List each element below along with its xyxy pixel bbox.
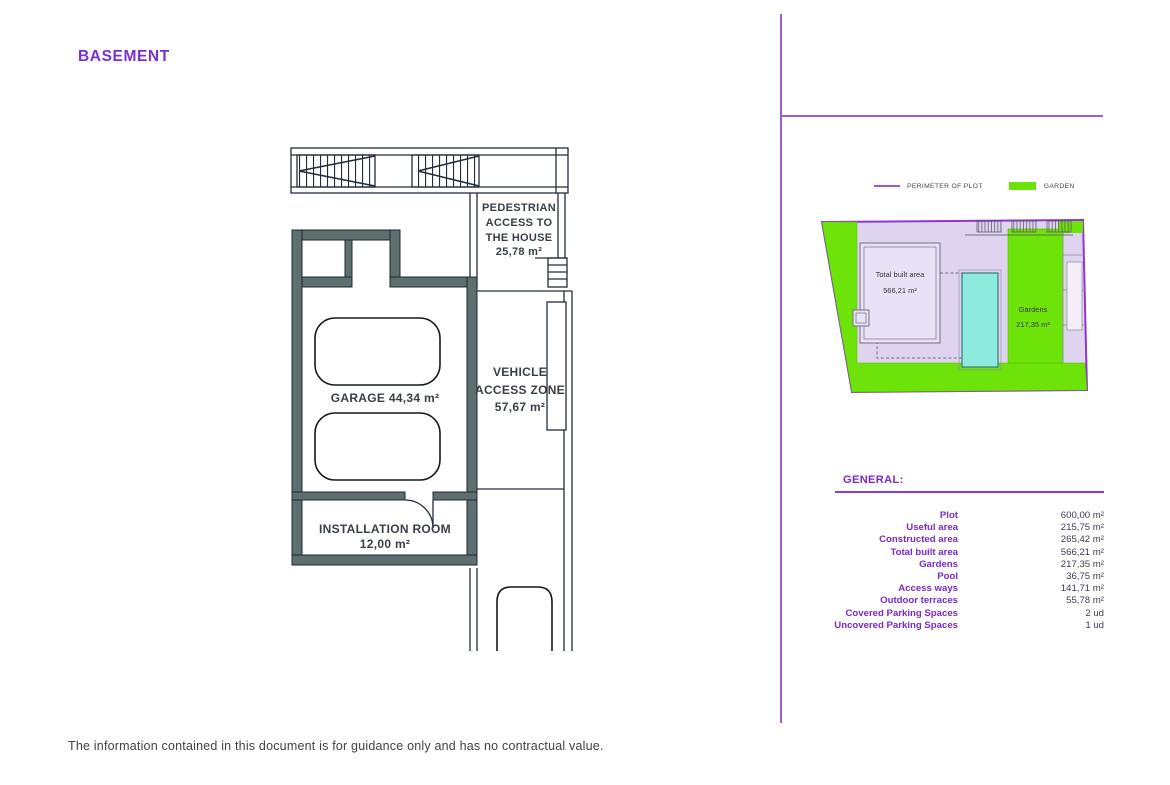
house-annex [853, 310, 869, 326]
vehicle-ramp [547, 302, 566, 430]
table-row: Uncovered Parking Spaces 1 ud [828, 620, 1104, 632]
car-outline-3 [497, 587, 552, 651]
row-value: 36,75 m² [958, 571, 1104, 583]
room-label-garage: GARAGE 44,34 m² [331, 391, 440, 405]
site-plan-drawing: Total built area 566,21 m² Gardens 217,3… [815, 215, 1095, 397]
row-label: Useful area [828, 522, 958, 534]
table-row: Pool 36,75 m² [828, 571, 1104, 583]
row-label: Pool [828, 571, 958, 583]
row-value: 1 ud [958, 620, 1104, 632]
document-page: BASEMENT [0, 0, 1170, 785]
row-value: 265,42 m² [958, 534, 1104, 546]
stair-band [291, 148, 568, 193]
table-row: Gardens 217,35 m² [828, 559, 1104, 571]
floor-plan-drawing: PEDESTRIAN ACCESS TO THE HOUSE 25,78 m² … [285, 140, 580, 655]
row-value: 600,00 m² [958, 510, 1104, 522]
row-value: 217,35 m² [958, 559, 1104, 571]
row-value: 2 ud [958, 608, 1104, 620]
row-value: 55,78 m² [958, 595, 1104, 607]
legend-label-perimeter: PERIMETER OF PLOT [907, 183, 983, 190]
garden-fill-swatch [1009, 182, 1036, 190]
vertical-divider-line [780, 14, 782, 723]
general-underline [835, 491, 1104, 493]
site-label-gardens-value: 217,35 m² [1016, 320, 1050, 329]
table-row: Outdoor terraces 55,78 m² [828, 595, 1104, 607]
table-row: Covered Parking Spaces 2 ud [828, 608, 1104, 620]
horizontal-divider-line [780, 115, 1103, 117]
room-label-installation-1: INSTALLATION ROOM [319, 522, 451, 536]
row-value: 215,75 m² [958, 522, 1104, 534]
car-outline-2 [315, 413, 440, 480]
room-label-installation-area: 12,00 m² [360, 537, 410, 551]
table-row: Useful area 215,75 m² [828, 522, 1104, 534]
car-outline-1 [315, 318, 440, 385]
row-label: Uncovered Parking Spaces [828, 620, 958, 632]
table-row: Constructed area 265,42 m² [828, 534, 1104, 546]
room-label-vehicle-2: ACCESS ZONE [475, 383, 565, 397]
site-label-built-area: Total built area [876, 270, 926, 279]
room-label-pedestrian-1: PEDESTRIAN [482, 202, 556, 214]
row-label: Covered Parking Spaces [828, 608, 958, 620]
legend-label-garden: GARDEN [1044, 183, 1075, 190]
row-value: 141,71 m² [958, 583, 1104, 595]
row-label: Plot [828, 510, 958, 522]
pool [959, 270, 1001, 370]
room-label-vehicle-area: 57,67 m² [495, 400, 545, 414]
row-label: Access ways [828, 583, 958, 595]
site-label-built-area-value: 566,21 m² [883, 286, 917, 295]
row-label: Constructed area [828, 534, 958, 546]
site-plan-legend: PERIMETER OF PLOT GARDEN [874, 180, 1075, 192]
general-heading: GENERAL: [843, 474, 1104, 486]
row-label: Total built area [828, 547, 958, 559]
table-row: Access ways 141,71 m² [828, 583, 1104, 595]
room-label-pedestrian-area: 25,78 m² [496, 246, 542, 258]
disclaimer-text: The information contained in this docume… [68, 739, 604, 753]
page-title: BASEMENT [78, 48, 170, 66]
room-label-vehicle-1: VEHICLE [493, 365, 547, 379]
row-label: Outdoor terraces [828, 595, 958, 607]
room-label-pedestrian-2: ACCESS TO [486, 217, 553, 229]
garden-area-right [1008, 229, 1063, 363]
table-row: Plot 600,00 m² [828, 510, 1104, 522]
general-table: Plot 600,00 m² Useful area 215,75 m² Con… [828, 510, 1104, 632]
general-section: GENERAL: Plot 600,00 m² Useful area 215,… [828, 474, 1104, 632]
row-value: 566,21 m² [958, 547, 1104, 559]
table-row: Total built area 566,21 m² [828, 547, 1104, 559]
site-label-gardens: Gardens [1019, 305, 1048, 314]
row-label: Gardens [828, 559, 958, 571]
room-label-pedestrian-3: THE HOUSE [486, 232, 553, 244]
perimeter-line-swatch [874, 185, 900, 187]
